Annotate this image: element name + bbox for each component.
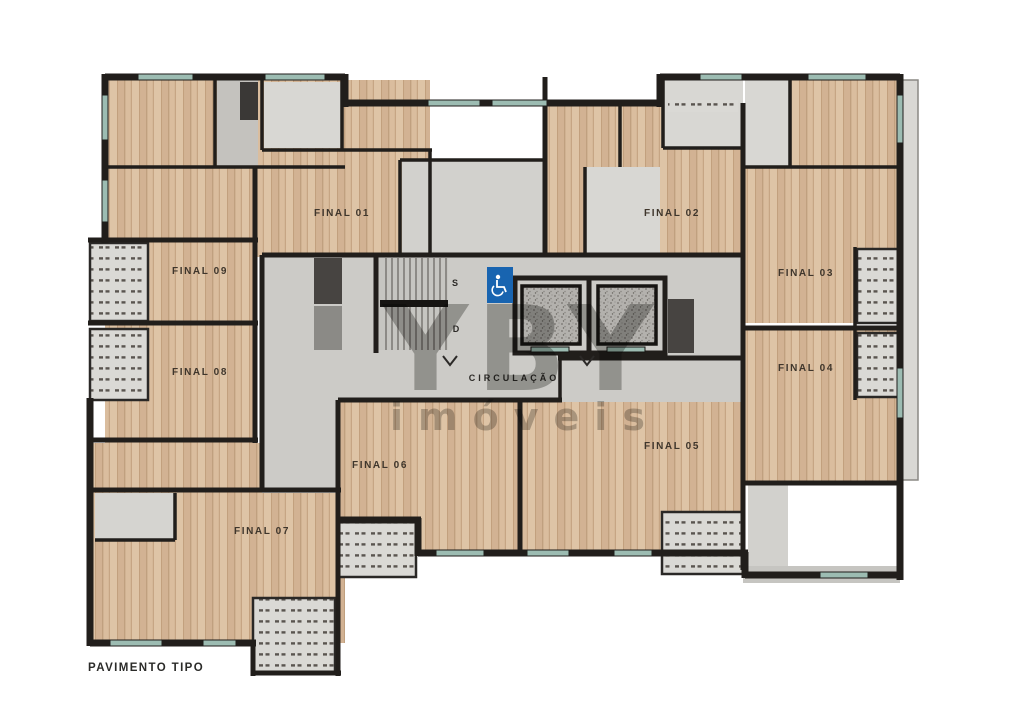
- watermark: YBY imóveis: [381, 280, 661, 439]
- window: [897, 95, 903, 143]
- unit-label-final-06: FINAL 06: [352, 460, 408, 471]
- bathroom-final-01: [264, 82, 342, 148]
- window: [897, 368, 903, 418]
- balcony-final-07: [253, 598, 335, 673]
- window: [138, 74, 193, 80]
- kitchen-final-01: [402, 160, 543, 255]
- unit-label-final-02: FINAL 02: [644, 208, 700, 219]
- window: [102, 95, 108, 140]
- balcony-final-08: [90, 329, 148, 400]
- window: [428, 100, 480, 106]
- window: [492, 100, 547, 106]
- balcony-final-09: [90, 243, 148, 321]
- unit-label-final-03: FINAL 03: [778, 268, 834, 279]
- facade-strip-right: [902, 80, 918, 480]
- window: [820, 572, 868, 578]
- plan-title: PAVIMENTO TIPO: [88, 662, 204, 674]
- unit-label-final-09: FINAL 09: [172, 266, 228, 277]
- circulation-corridor: [262, 398, 340, 493]
- laundry-cabinets: [668, 100, 738, 112]
- window: [203, 640, 236, 646]
- balcony-final-05: [662, 512, 743, 574]
- balcony-final-06: [338, 520, 416, 577]
- window: [700, 74, 742, 80]
- unit-label-final-01: FINAL 01: [314, 208, 370, 219]
- vestibule-final-04-05: [748, 483, 788, 566]
- laundry-room: [663, 80, 743, 148]
- window: [110, 640, 162, 646]
- bathroom-final-02: [745, 80, 790, 167]
- window: [614, 550, 652, 556]
- bathroom-final-07: [95, 493, 175, 540]
- floorplan-page: FINAL 01 FINAL 02 FINAL 03 FINAL 04 FINA…: [0, 0, 1024, 724]
- window: [808, 74, 866, 80]
- floorplan-drawing: FINAL 01 FINAL 02 FINAL 03 FINAL 04 FINA…: [0, 0, 1024, 724]
- unit-label-final-04: FINAL 04: [778, 363, 834, 374]
- unit-label-final-07: FINAL 07: [234, 526, 290, 537]
- window: [265, 74, 325, 80]
- watermark-tagline: imóveis: [390, 395, 660, 439]
- window: [102, 180, 108, 222]
- shaft-final-01: [240, 82, 258, 120]
- window: [527, 550, 569, 556]
- duct-right: [668, 299, 694, 353]
- window: [436, 550, 484, 556]
- duct-left: [314, 258, 342, 304]
- shaft-left: [314, 306, 342, 350]
- unit-label-final-05: FINAL 05: [644, 441, 700, 452]
- unit-label-final-08: FINAL 08: [172, 367, 228, 378]
